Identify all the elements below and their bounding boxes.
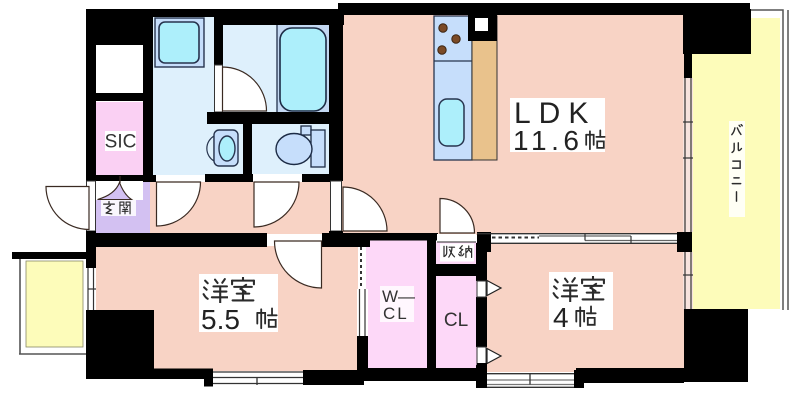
svg-text:CL: CL bbox=[383, 304, 409, 323]
svg-text:11.6: 11.6 bbox=[513, 125, 583, 156]
svg-text:CL: CL bbox=[444, 310, 468, 331]
svg-text:4: 4 bbox=[553, 302, 569, 333]
svg-text:SIC: SIC bbox=[105, 132, 137, 153]
svg-text:5.5: 5.5 bbox=[201, 304, 240, 335]
